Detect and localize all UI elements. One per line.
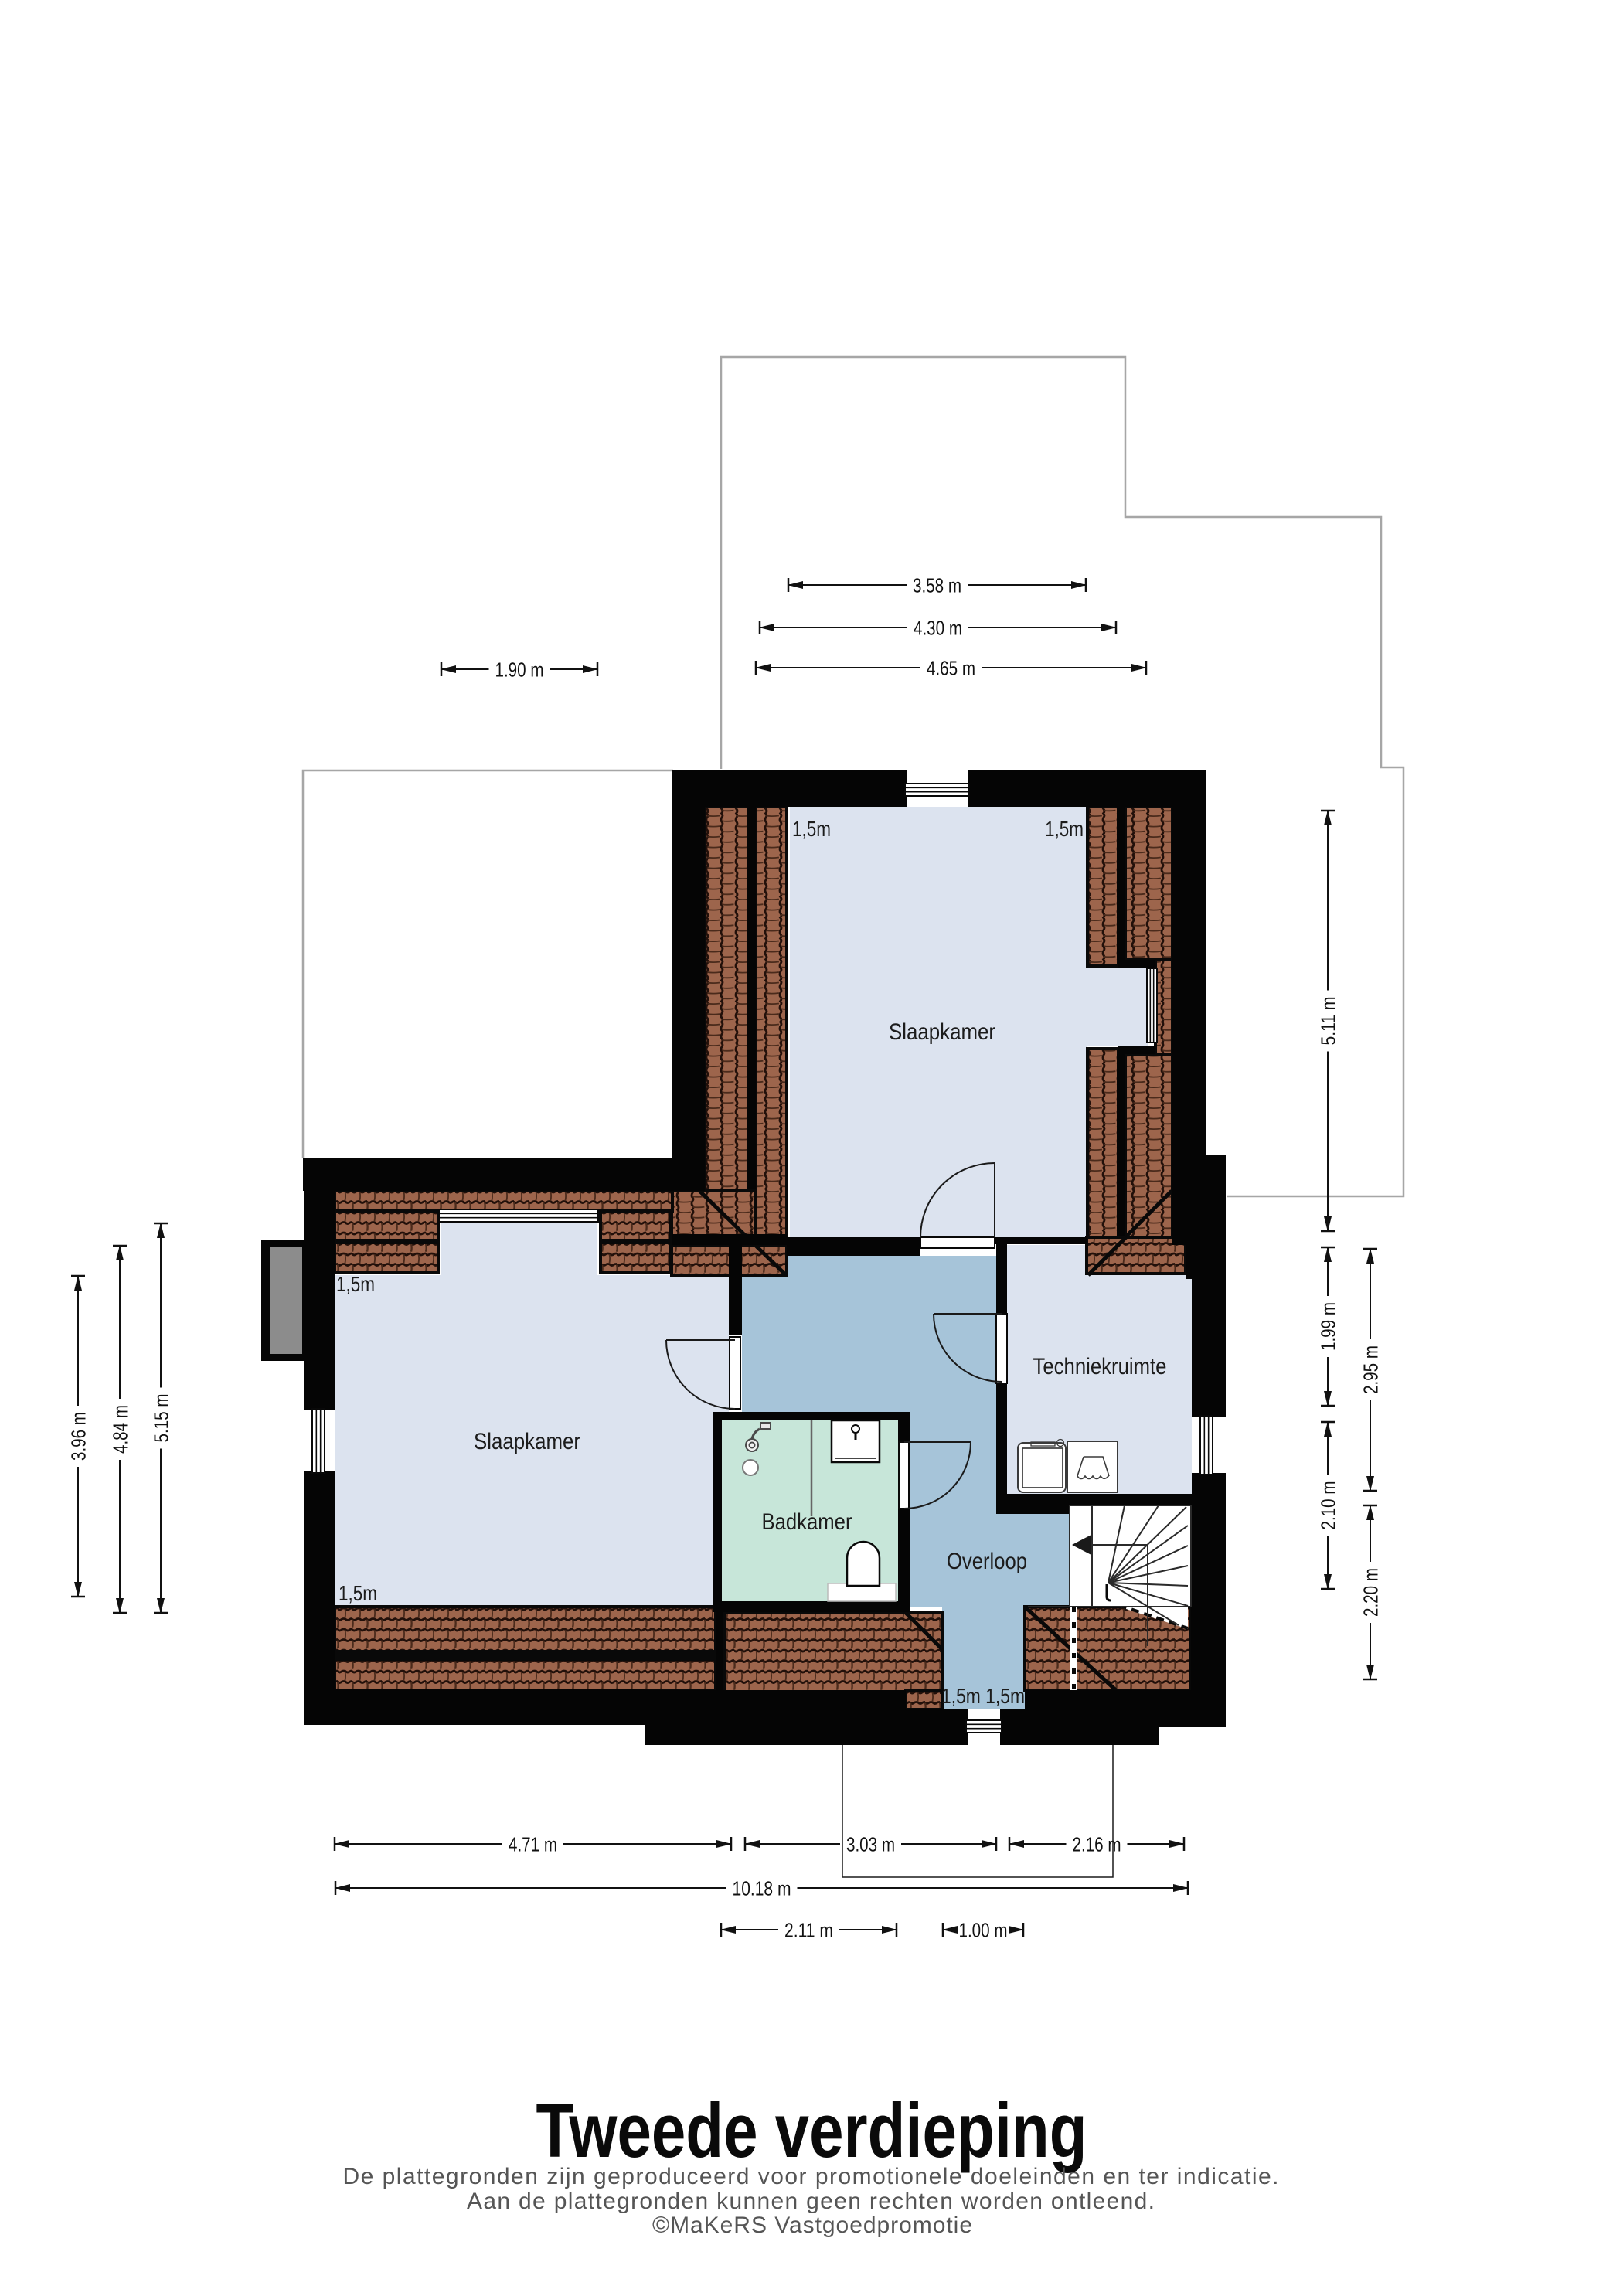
svg-text:4.65 m: 4.65 m [927,657,975,680]
svg-text:10.18 m: 10.18 m [733,1877,791,1900]
svg-text:Slaapkamer: Slaapkamer [889,1019,995,1045]
svg-text:Techniekruimte: Techniekruimte [1033,1354,1167,1379]
svg-text:©MaKeRS Vastgoedpromotie: ©MaKeRS Vastgoedpromotie [652,2213,972,2238]
svg-text:5.15 m: 5.15 m [150,1394,173,1443]
svg-text:2.11 m: 2.11 m [784,1919,833,1942]
svg-text:1,5m 1,5m: 1,5m 1,5m [941,1684,1025,1708]
svg-text:1.99 m: 1.99 m [1317,1302,1340,1351]
svg-text:2.16 m: 2.16 m [1073,1833,1121,1856]
svg-text:Slaapkamer: Slaapkamer [474,1429,580,1454]
svg-text:1,5m: 1,5m [339,1581,377,1605]
svg-text:1.00 m: 1.00 m [959,1919,1008,1942]
svg-text:2.95 m: 2.95 m [1359,1345,1383,1394]
svg-text:4.30 m: 4.30 m [914,617,962,640]
svg-text:1.90 m: 1.90 m [495,658,544,682]
svg-text:4.84 m: 4.84 m [109,1405,132,1454]
svg-text:5.11 m: 5.11 m [1317,997,1340,1046]
svg-text:4.71 m: 4.71 m [509,1833,557,1856]
svg-text:1,5m: 1,5m [792,817,831,841]
svg-text:2.20 m: 2.20 m [1359,1568,1383,1617]
svg-text:3.58 m: 3.58 m [913,574,961,597]
svg-text:Badkamer: Badkamer [762,1509,852,1535]
svg-text:3.96 m: 3.96 m [67,1412,90,1461]
svg-text:Overloop: Overloop [947,1549,1027,1574]
svg-text:2.10 m: 2.10 m [1317,1481,1340,1530]
svg-text:De plattegronden zijn geproduc: De plattegronden zijn geproduceerd voor … [343,2164,1279,2189]
svg-text:1,5m: 1,5m [1045,817,1084,841]
svg-text:1,5m: 1,5m [336,1272,375,1296]
svg-text:3.03 m: 3.03 m [846,1833,895,1856]
svg-text:Aan de plattegronden kunnen ge: Aan de plattegronden kunnen geen rechten… [467,2189,1155,2214]
svg-text:Tweede verdieping: Tweede verdieping [536,2087,1087,2173]
